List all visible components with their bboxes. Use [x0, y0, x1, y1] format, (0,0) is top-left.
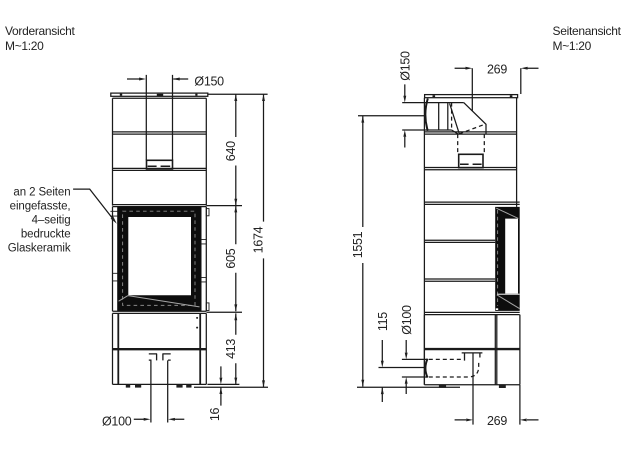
svg-text:1551: 1551 — [351, 231, 365, 258]
svg-text:Vorderansicht: Vorderansicht — [5, 24, 75, 38]
svg-text:Ø100: Ø100 — [400, 305, 414, 335]
svg-text:4–seitig: 4–seitig — [32, 214, 71, 226]
svg-text:640: 640 — [224, 141, 238, 161]
svg-text:bedruckte: bedruckte — [21, 228, 71, 240]
svg-text:269: 269 — [487, 414, 507, 428]
svg-text:16: 16 — [208, 408, 222, 422]
svg-text:Glaskeramik: Glaskeramik — [8, 242, 71, 254]
svg-text:Ø150: Ø150 — [399, 51, 413, 81]
svg-text:M~1:20: M~1:20 — [553, 39, 592, 53]
svg-text:Ø100: Ø100 — [102, 415, 132, 429]
svg-text:an 2 Seiten: an 2 Seiten — [13, 186, 70, 198]
svg-text:eingefasste,: eingefasste, — [10, 200, 71, 212]
svg-text:Ø150: Ø150 — [194, 75, 224, 89]
svg-text:269: 269 — [487, 63, 507, 77]
svg-text:M~1:20: M~1:20 — [5, 39, 44, 53]
svg-text:Seitenansicht: Seitenansicht — [553, 24, 622, 38]
svg-text:605: 605 — [224, 248, 238, 268]
svg-text:1674: 1674 — [252, 226, 266, 253]
svg-text:115: 115 — [376, 312, 390, 331]
svg-text:413: 413 — [224, 339, 238, 359]
